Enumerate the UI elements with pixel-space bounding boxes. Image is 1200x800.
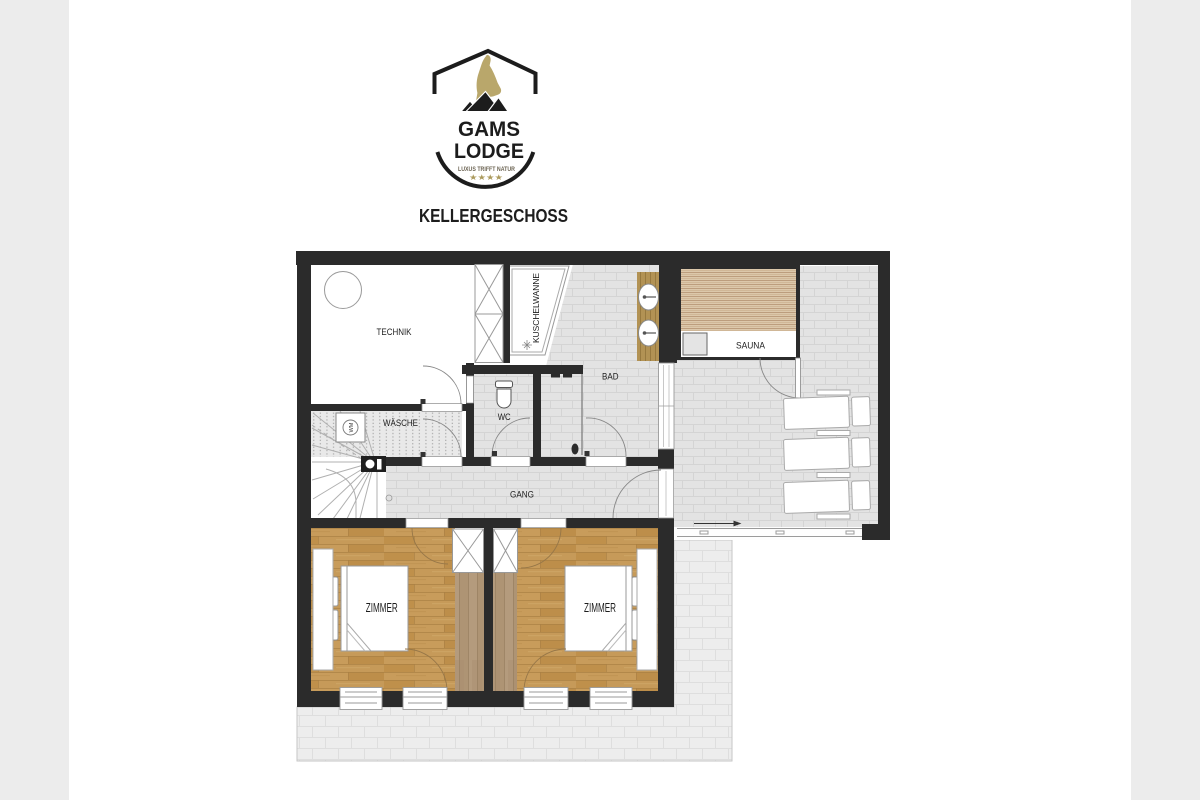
svg-text:TECHNIK: TECHNIK [377,327,413,338]
svg-text:GANG: GANG [510,490,534,501]
svg-text:ZIMMER: ZIMMER [584,601,616,615]
svg-text:LODGE: LODGE [454,139,524,163]
svg-text:WC: WC [498,412,511,422]
svg-text:KELLERGESCHOSS: KELLERGESCHOSS [419,206,568,226]
svg-text:SAUNA: SAUNA [736,341,765,351]
svg-text:★★★★: ★★★★ [469,173,503,182]
svg-text:ZIMMER: ZIMMER [366,601,398,615]
svg-text:KUSCHELWANNE: KUSCHELWANNE [531,273,541,343]
svg-text:GAMS: GAMS [458,117,520,141]
svg-text:WM: WM [349,422,355,432]
svg-text:BAD: BAD [602,372,619,383]
svg-text:LUXUS TRIFFT NATUR: LUXUS TRIFFT NATUR [458,166,515,173]
svg-text:WÄSCHE: WÄSCHE [383,418,418,429]
